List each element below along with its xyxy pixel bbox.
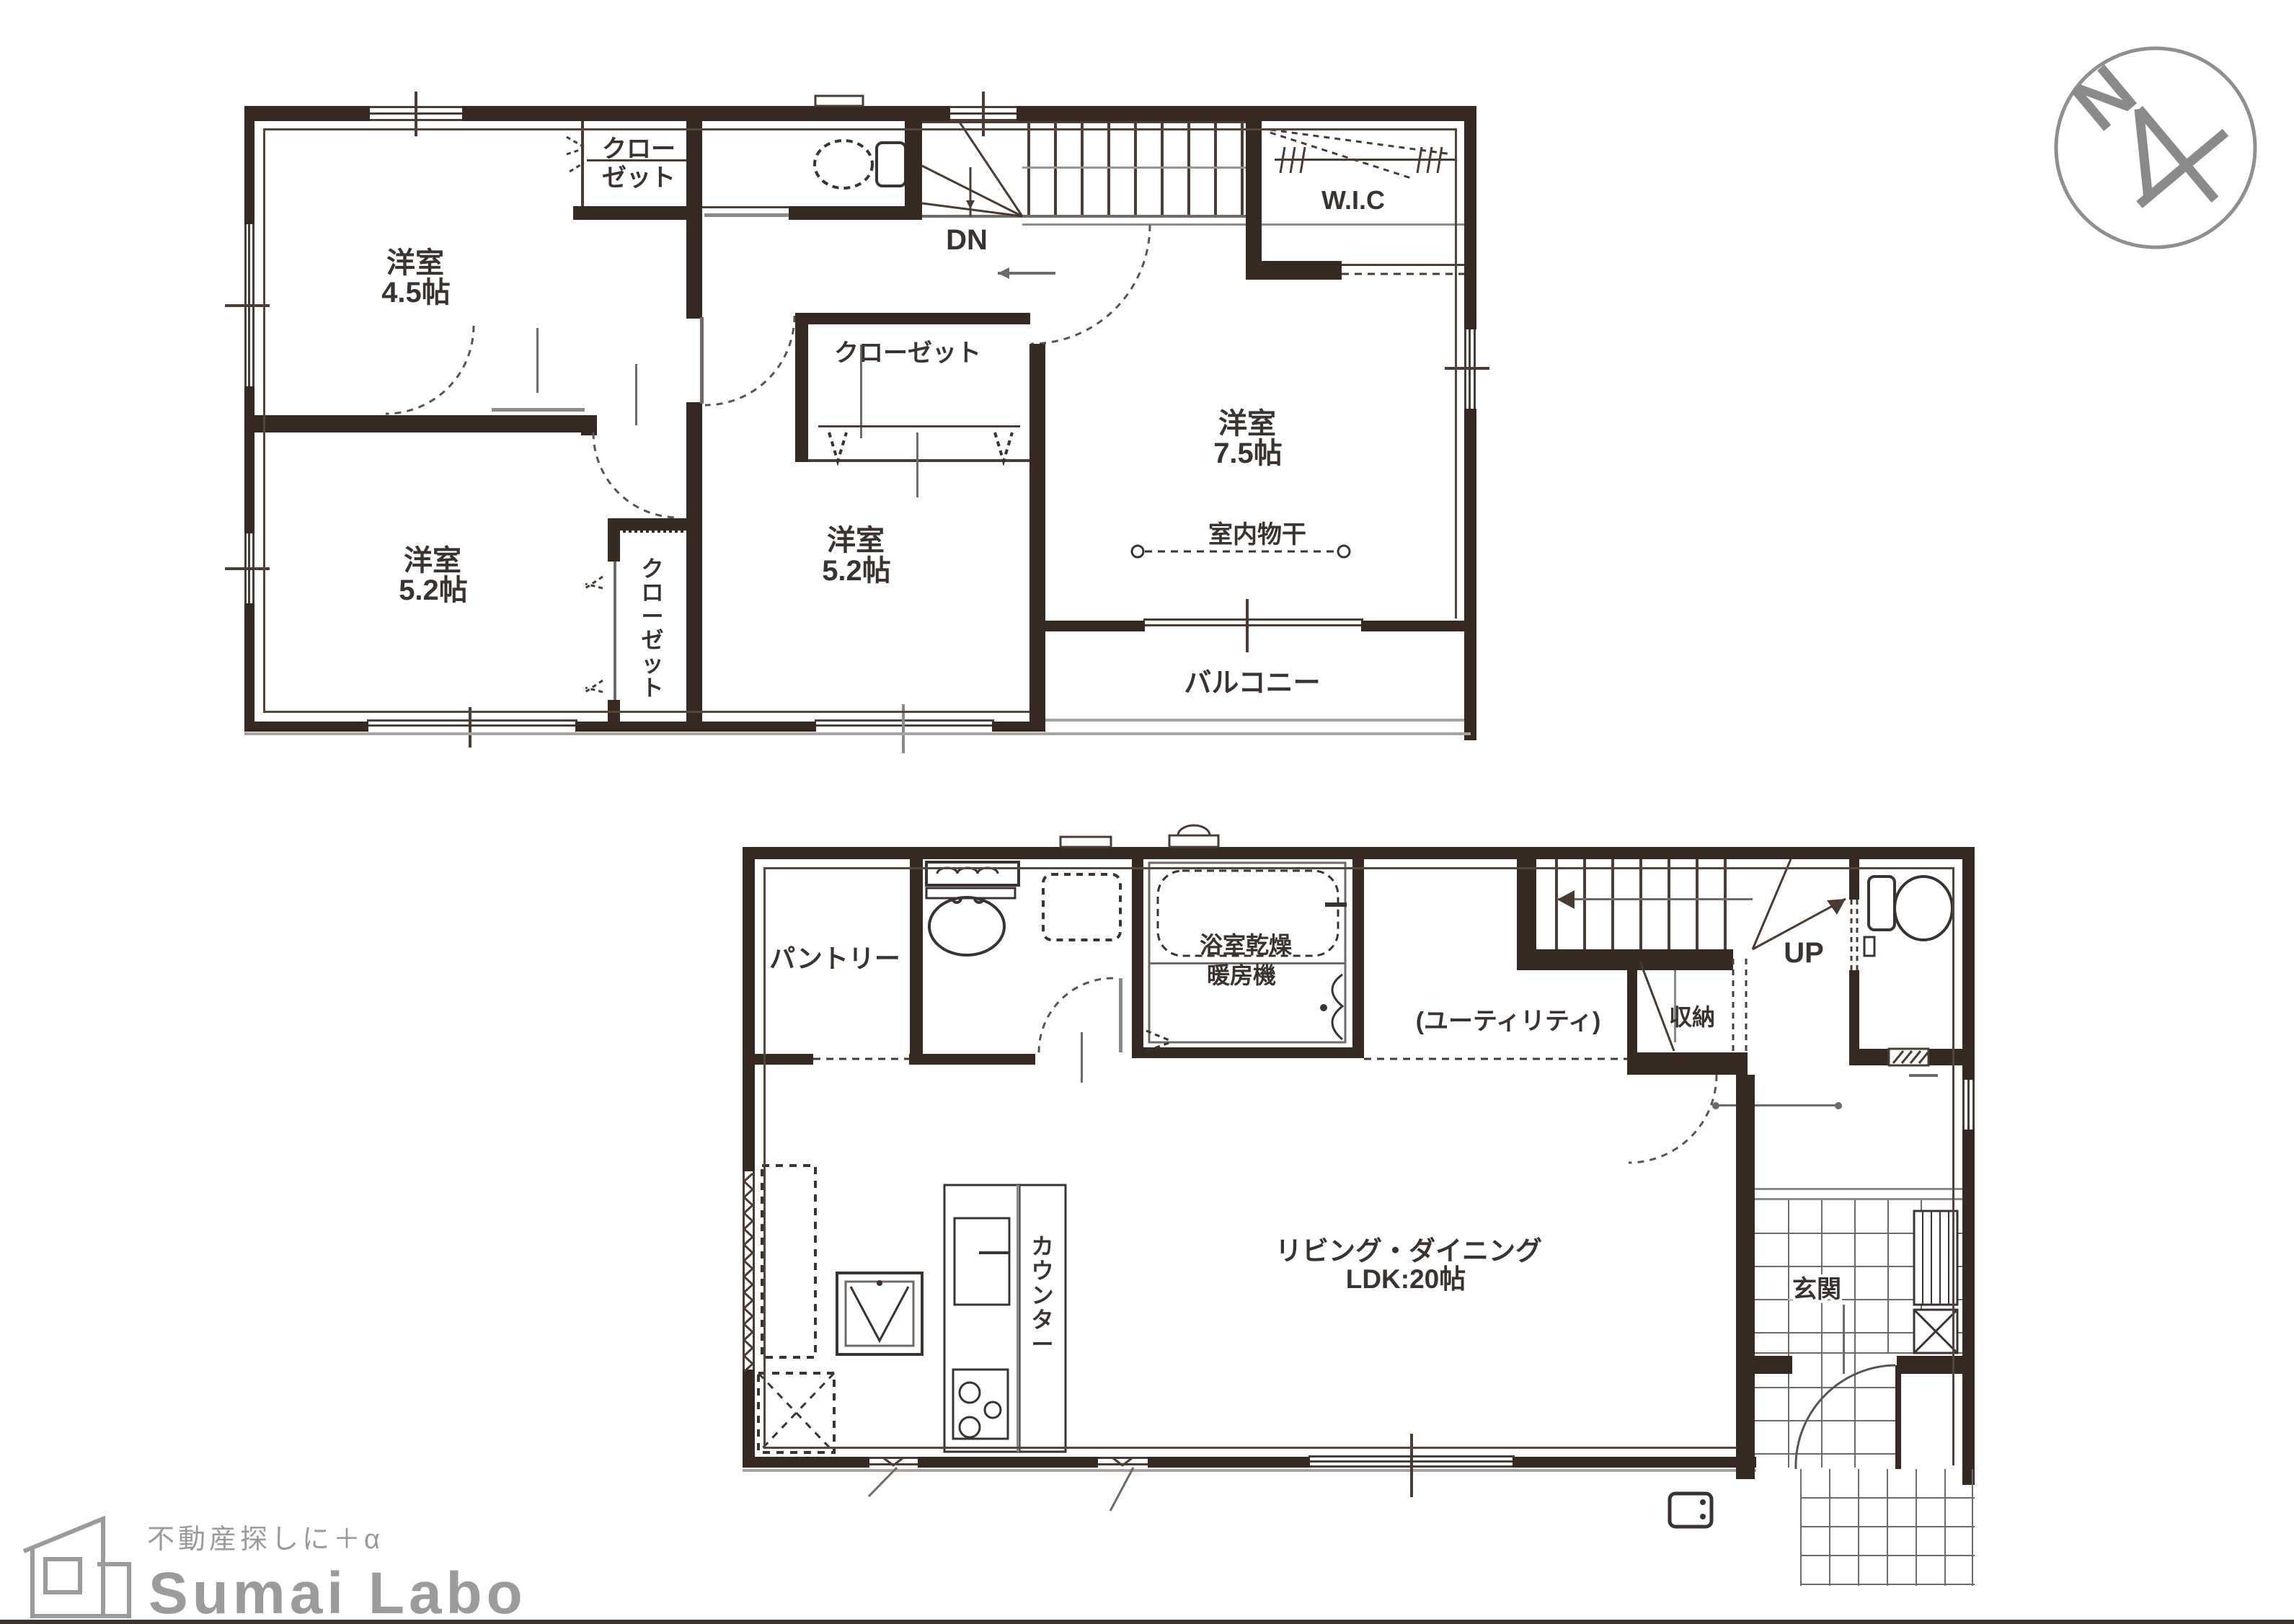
svg-text:ゼ: ゼ <box>642 628 664 653</box>
svg-text:ッ: ッ <box>642 652 664 677</box>
svg-text:W.I.C: W.I.C <box>1321 185 1385 215</box>
svg-text:タ: タ <box>1032 1308 1054 1333</box>
svg-text:暖房機: 暖房機 <box>1207 962 1276 988</box>
svg-text:Sumai Labo: Sumai Labo <box>149 1561 527 1624</box>
svg-text:ロ: ロ <box>642 580 664 605</box>
svg-text:4.5帖: 4.5帖 <box>381 277 451 309</box>
svg-text:ト: ト <box>642 675 664 701</box>
svg-text:洋室: 洋室 <box>386 247 444 279</box>
svg-text:クロー: クロー <box>602 136 676 163</box>
svg-text:不動産探しに＋α: 不動産探しに＋α <box>147 1525 384 1555</box>
svg-text:7.5帖: 7.5帖 <box>1213 438 1283 469</box>
svg-text:ー: ー <box>642 604 664 629</box>
svg-text:浴室乾燥: 浴室乾燥 <box>1200 932 1293 958</box>
svg-text:ク: ク <box>642 556 664 582</box>
svg-text:バルコニー: バルコニー <box>1184 668 1320 698</box>
svg-text:ー: ー <box>1032 1332 1054 1357</box>
svg-text:ゼット: ゼット <box>602 164 676 192</box>
svg-text:クローゼット: クローゼット <box>834 340 981 367</box>
svg-text:洋室: 洋室 <box>827 525 885 556</box>
svg-text:洋室: 洋室 <box>404 545 461 577</box>
svg-text:DN: DN <box>946 224 988 256</box>
svg-text:収納: 収納 <box>1669 1004 1715 1030</box>
svg-text:(ユーティリティ): (ユーティリティ) <box>1416 1008 1601 1035</box>
svg-text:カ: カ <box>1032 1234 1054 1259</box>
svg-text:玄関: 玄関 <box>1792 1276 1841 1303</box>
svg-text:ン: ン <box>1032 1283 1054 1308</box>
svg-text:室内物干: 室内物干 <box>1208 520 1306 549</box>
svg-text:LDK:20帖: LDK:20帖 <box>1346 1264 1466 1294</box>
svg-text:ウ: ウ <box>1032 1259 1054 1284</box>
svg-text:洋室: 洋室 <box>1218 408 1276 440</box>
svg-text:UP: UP <box>1784 937 1824 969</box>
svg-text:パントリー: パントリー <box>769 944 900 973</box>
svg-text:リビング・ダイニング: リビング・ダイニング <box>1275 1236 1542 1266</box>
svg-text:5.2帖: 5.2帖 <box>822 555 891 587</box>
svg-text:5.2帖: 5.2帖 <box>399 574 468 606</box>
